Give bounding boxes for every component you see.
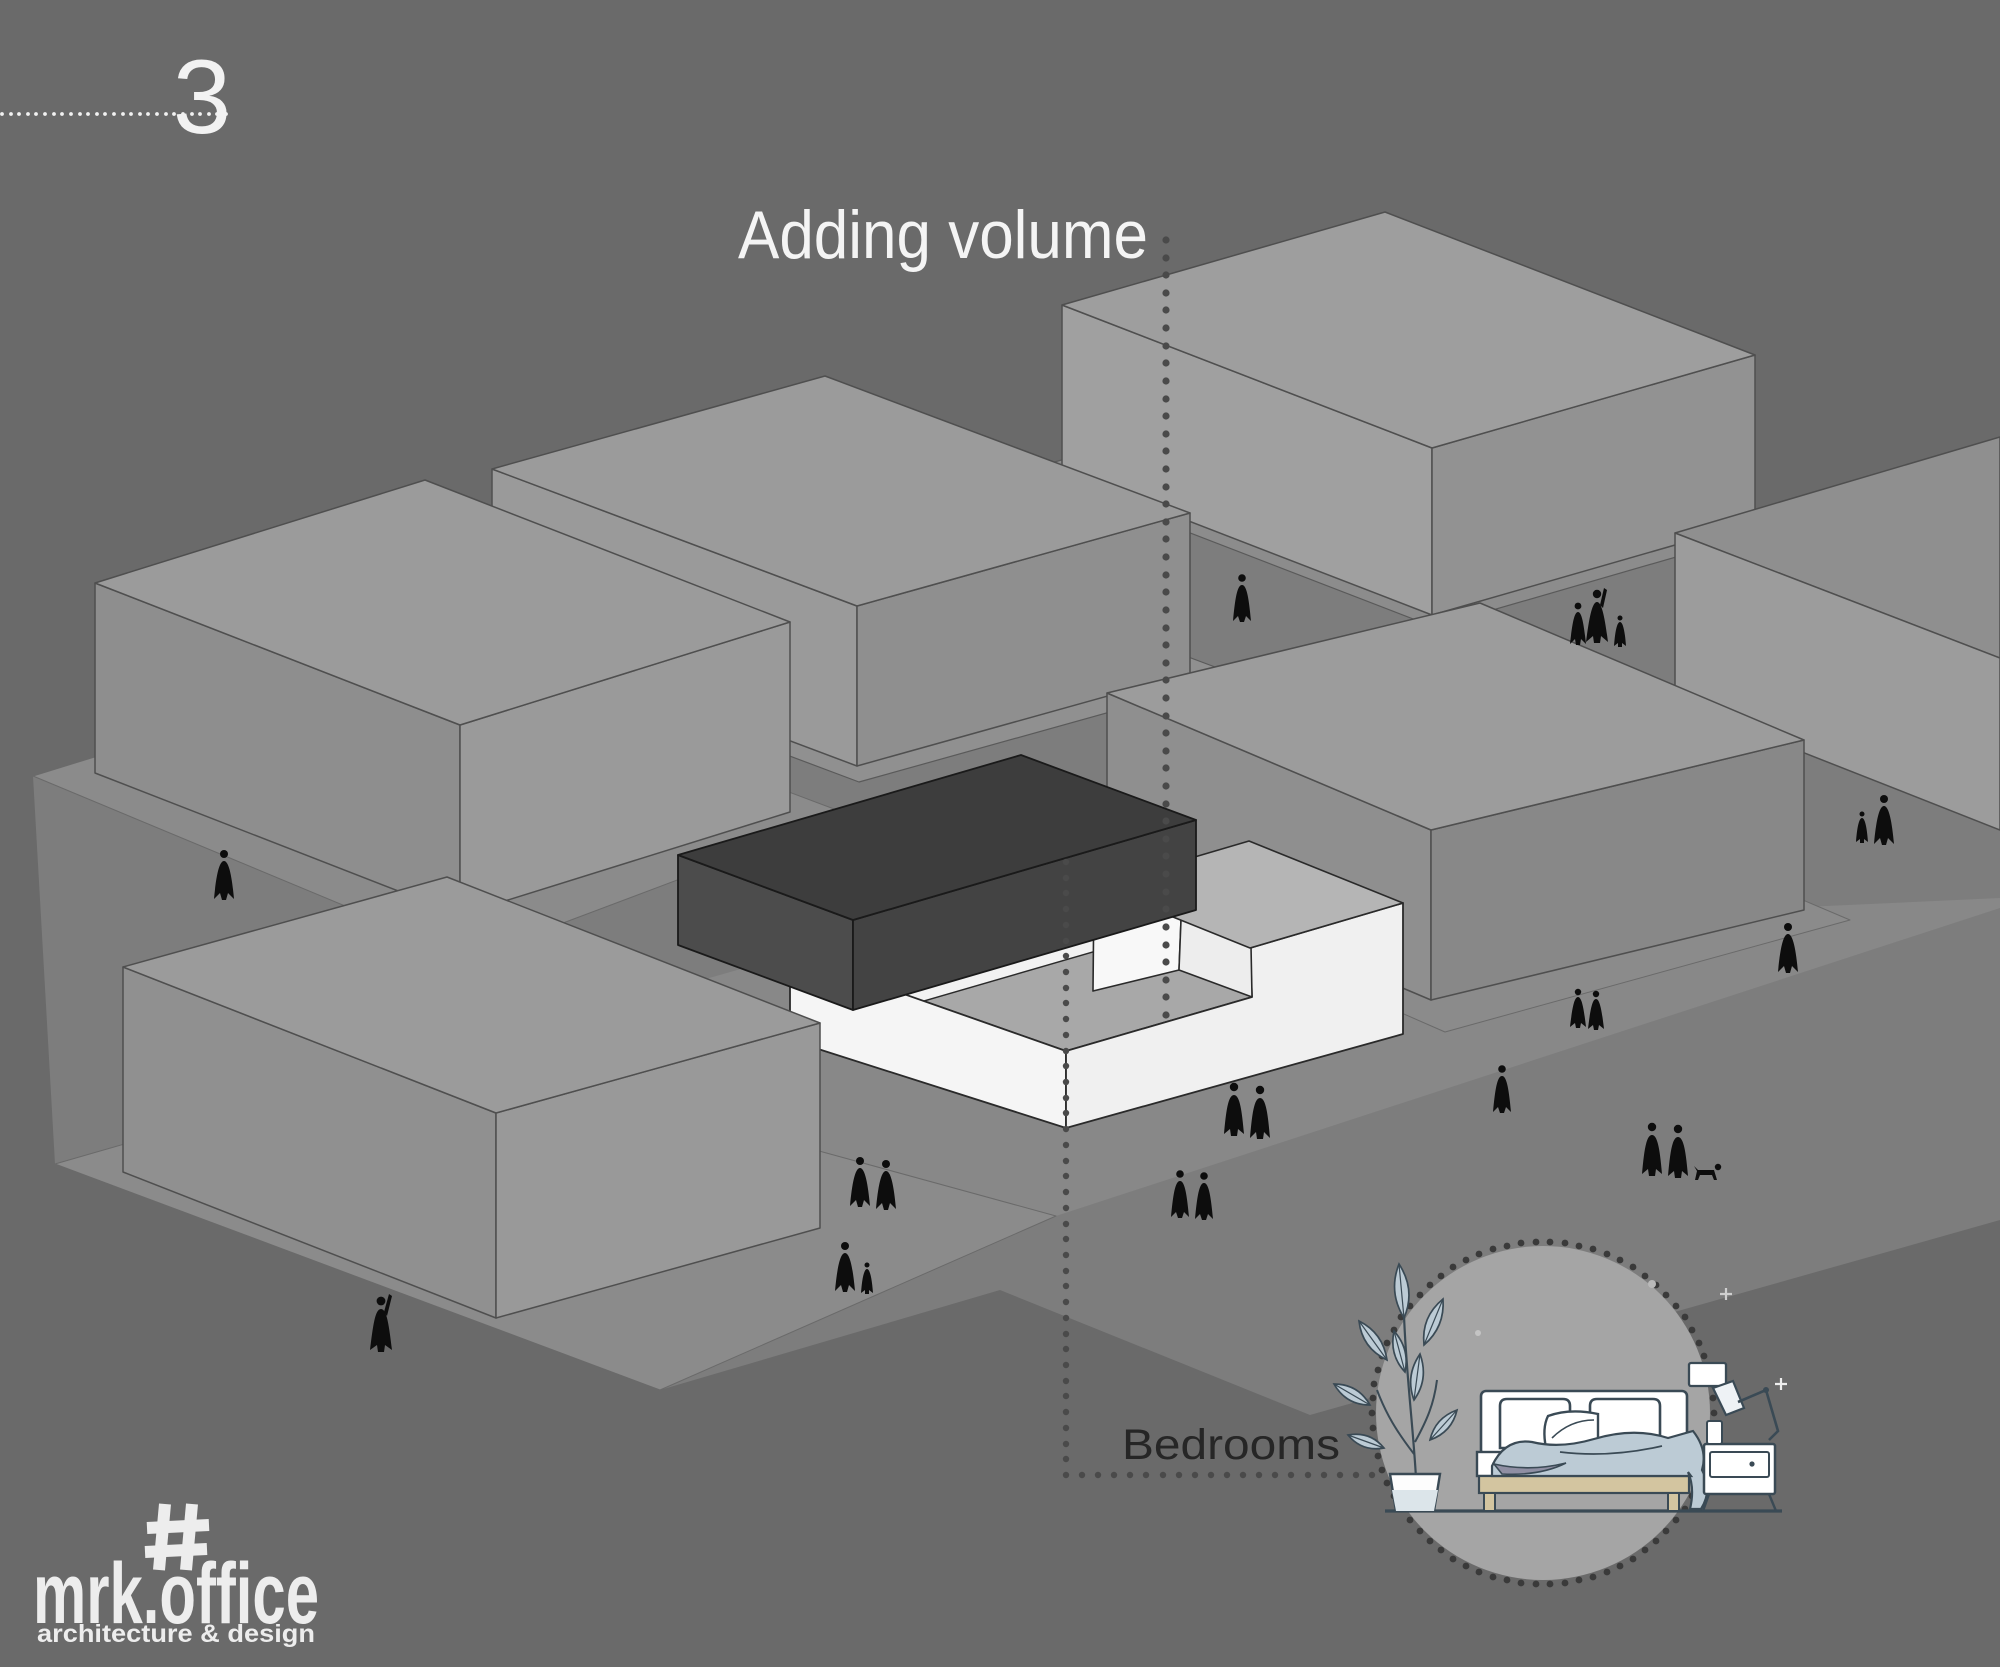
svg-text:3: 3 [173,39,231,156]
svg-text:Adding volume: Adding volume [738,197,1148,273]
svg-text:architecture & design: architecture & design [37,1620,315,1648]
svg-text:Bedrooms: Bedrooms [1122,1421,1340,1469]
